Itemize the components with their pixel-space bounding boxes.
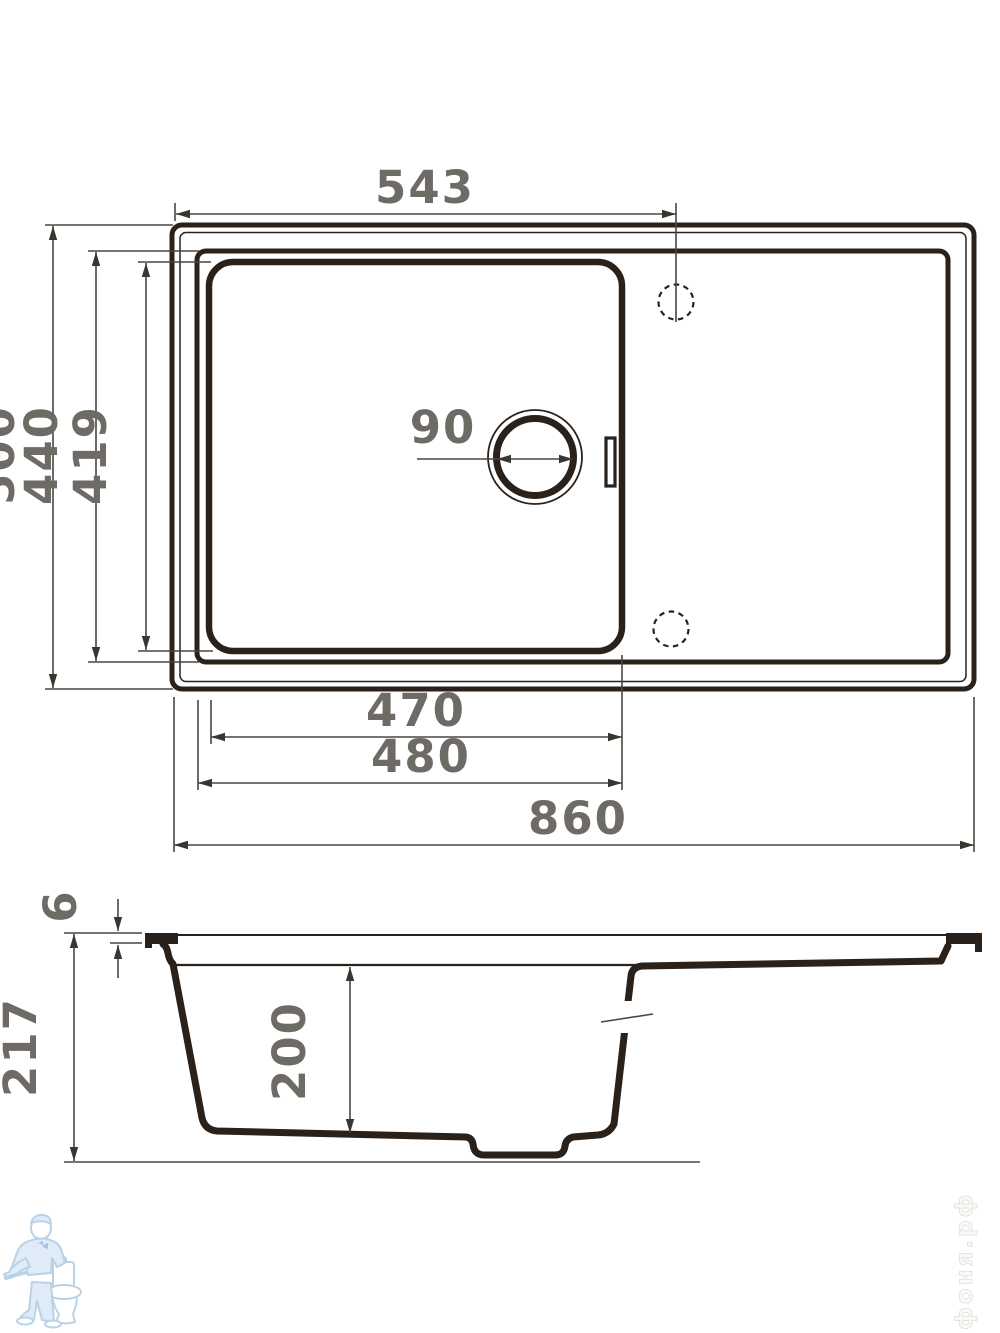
plumber-shoe-right: [45, 1321, 61, 1328]
dim-label-90: 90: [410, 401, 477, 454]
dimension-200: 200: [263, 967, 350, 1133]
dim-label-480: 480: [371, 730, 471, 783]
plan-drain-outer: [488, 410, 582, 504]
plumber-shoe-left: [17, 1318, 33, 1325]
plan-view: 543 500 440 419 90: [0, 161, 974, 852]
plumber-legs: [20, 1282, 54, 1322]
dimension-6: 6: [34, 889, 142, 978]
watermark-site-text: афоня.рф: [952, 1192, 978, 1333]
dim-label-217: 217: [0, 997, 47, 1097]
section-right-rim-lip: [975, 933, 982, 952]
plan-bowl: [209, 262, 622, 651]
dim-label-200: 200: [263, 1001, 316, 1101]
dim-label-419: 419: [64, 405, 117, 505]
plan-overflow-notch: [606, 438, 615, 486]
section-view: 6 217 200: [0, 889, 982, 1162]
dim-label-860: 860: [528, 792, 628, 845]
plan-tap-hole-bottom: [654, 612, 689, 647]
dim-label-6: 6: [34, 889, 87, 922]
technical-drawing: 543 500 440 419 90: [0, 0, 1000, 1333]
dim-label-440: 440: [15, 405, 68, 505]
section-left-rim-lip: [145, 933, 152, 948]
sink-technical-drawing-page: 543 500 440 419 90: [0, 0, 1000, 1333]
plan-drain-inner: [497, 419, 574, 496]
dimension-419: 419: [64, 262, 213, 651]
dimension-860: 860: [174, 697, 974, 852]
watermark-plumber-logo: [4, 1215, 81, 1328]
dim-label-543: 543: [375, 161, 475, 214]
dimension-543: 543: [175, 161, 676, 322]
dimension-90: 90: [410, 401, 573, 459]
